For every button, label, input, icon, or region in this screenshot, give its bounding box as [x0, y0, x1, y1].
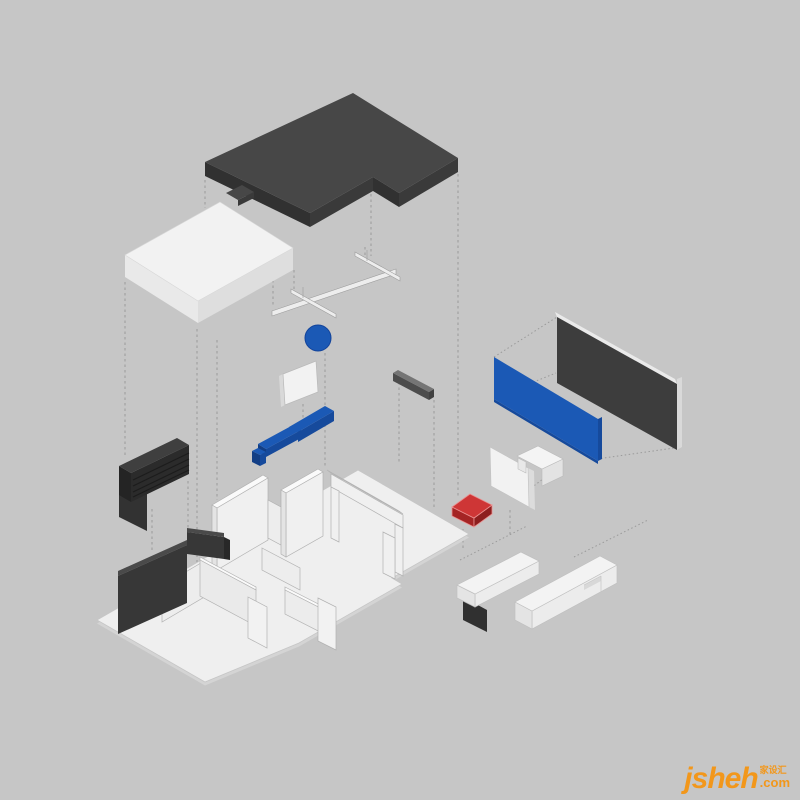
watermark-tld: .com [760, 776, 790, 789]
ceiling-slab [125, 202, 293, 323]
wall-back-low [268, 500, 281, 545]
red-cabinet [452, 494, 492, 527]
exploded-diagram-canvas [0, 0, 800, 800]
blue-console [252, 406, 334, 466]
roof-slab [205, 93, 458, 227]
watermark-brand: jsheh [684, 764, 757, 794]
wall-art-panel [279, 361, 318, 407]
door-panel-mid [318, 598, 336, 650]
door-panel-right [383, 532, 395, 579]
track-light-rail [272, 269, 396, 316]
exploded-axonometric-page: { "watermark": { "brand": "jsheh", "tld"… [0, 0, 800, 800]
pendant-light [305, 325, 331, 351]
watermark-cjk: 家设汇 [760, 766, 787, 775]
watermark: jsheh 家设汇 .com [684, 764, 790, 794]
slatted-cabinet [119, 438, 189, 531]
watermark-side: 家设汇 .com [760, 766, 790, 789]
